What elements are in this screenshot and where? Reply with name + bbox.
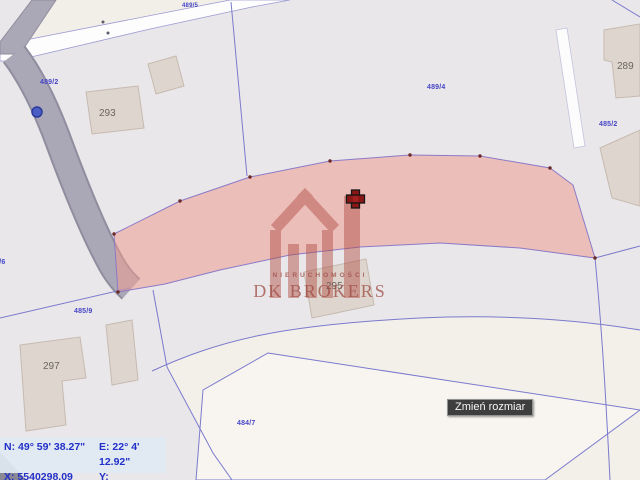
coordinates-row-projected: X: 5540298.09 Y: 7576735.69 bbox=[4, 470, 166, 480]
map-canvas[interactable] bbox=[0, 0, 640, 480]
coord-e-label: E: bbox=[99, 441, 110, 453]
watermark-title: DK BROKERS bbox=[180, 281, 460, 302]
resize-button[interactable]: Zmień rozmiar bbox=[447, 399, 533, 416]
vertex-marker-dot bbox=[32, 107, 42, 117]
coordinates-row-geographic: N: 49° 59' 38.27" E: 22° 4' 12.92" bbox=[4, 440, 166, 470]
coord-n-label: N: bbox=[4, 441, 15, 453]
building bbox=[106, 320, 138, 385]
map-view: 489/2 489/5 489/4 485/2 485/6 485/9 484/… bbox=[0, 0, 640, 480]
coord-x-label: X: bbox=[4, 471, 15, 480]
coord-y-label: Y: bbox=[99, 471, 109, 480]
coord-n-value: 49° 59' 38.27" bbox=[18, 441, 85, 453]
building-293 bbox=[86, 86, 144, 134]
watermark-subtitle: NIERUCHOMOŚCI bbox=[200, 272, 440, 279]
coordinates-panel: N: 49° 59' 38.27" E: 22° 4' 12.92" X: 55… bbox=[0, 437, 166, 473]
coord-x-value: 5540298.09 bbox=[17, 471, 72, 480]
